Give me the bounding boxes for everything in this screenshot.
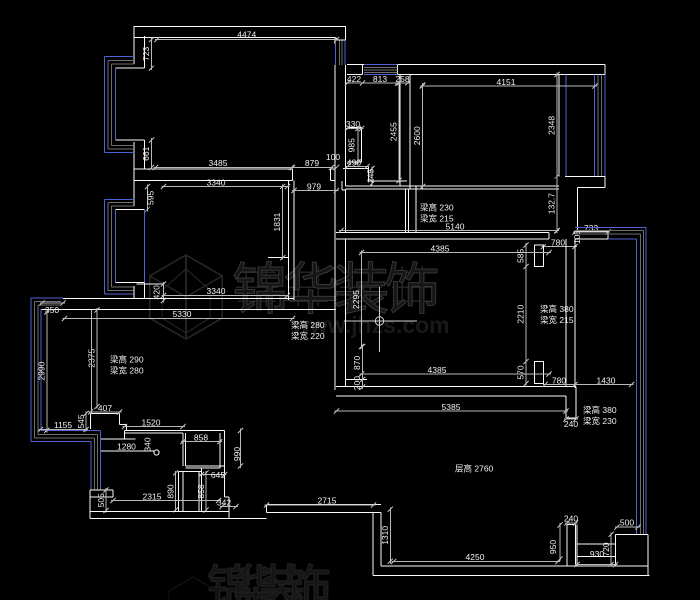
svg-text:层高 2760: 层高 2760	[455, 464, 494, 474]
svg-text:1310: 1310	[380, 526, 390, 545]
svg-text:407: 407	[98, 403, 112, 413]
svg-text:梁高 380: 梁高 380	[583, 405, 617, 415]
svg-text:5385: 5385	[442, 402, 461, 412]
svg-text:240: 240	[564, 419, 578, 429]
svg-text:723: 723	[141, 46, 151, 60]
svg-text:2348: 2348	[547, 116, 557, 135]
svg-text:2715: 2715	[318, 496, 337, 506]
svg-text:813: 813	[373, 74, 387, 84]
svg-text:645: 645	[211, 470, 225, 480]
svg-text:2455: 2455	[388, 122, 398, 141]
svg-text:132.7: 132.7	[547, 193, 557, 215]
svg-text:500: 500	[620, 518, 634, 528]
svg-text:5330: 5330	[173, 309, 192, 319]
svg-text:2295: 2295	[351, 290, 361, 309]
svg-text:梁宽 230: 梁宽 230	[583, 416, 617, 426]
svg-text:979: 979	[307, 182, 321, 192]
svg-text:4385: 4385	[428, 365, 447, 375]
svg-text:200: 200	[352, 376, 362, 390]
svg-text:1155: 1155	[54, 420, 73, 430]
svg-text:342: 342	[217, 498, 231, 508]
svg-text:858: 858	[194, 433, 208, 443]
svg-text:985: 985	[347, 138, 357, 152]
svg-text:梁高 280: 梁高 280	[291, 320, 325, 330]
svg-text:340: 340	[143, 437, 153, 451]
svg-text:505: 505	[96, 493, 106, 507]
svg-text:梁高 290: 梁高 290	[110, 355, 144, 365]
svg-text:4474: 4474	[237, 30, 256, 40]
svg-text:100: 100	[326, 152, 340, 162]
svg-text:595: 595	[146, 191, 156, 205]
svg-text:870: 870	[352, 356, 362, 370]
svg-text:1831: 1831	[272, 212, 282, 231]
svg-text:661: 661	[141, 146, 151, 160]
svg-text:720: 720	[601, 542, 611, 556]
svg-text:2990: 2990	[36, 361, 46, 380]
svg-text:梁宽 215: 梁宽 215	[540, 315, 574, 325]
svg-text:890: 890	[166, 484, 176, 498]
svg-text:780: 780	[551, 238, 565, 248]
svg-text:858: 858	[196, 484, 206, 498]
svg-text:1430: 1430	[597, 376, 616, 386]
svg-text:879: 879	[305, 158, 319, 168]
svg-text:4250: 4250	[466, 552, 485, 562]
svg-text:545: 545	[76, 414, 86, 428]
svg-text:梁宽 280: 梁宽 280	[110, 366, 144, 376]
svg-text:240: 240	[564, 514, 578, 524]
svg-text:585: 585	[516, 248, 526, 262]
svg-text:570: 570	[516, 365, 526, 379]
svg-text:3340: 3340	[207, 178, 226, 188]
svg-text:3485: 3485	[209, 158, 228, 168]
svg-text:490: 490	[347, 158, 361, 168]
svg-text:5140: 5140	[446, 222, 465, 232]
svg-text:4151: 4151	[497, 77, 516, 87]
svg-text:258: 258	[395, 74, 409, 84]
svg-text:梁宽 220: 梁宽 220	[291, 331, 325, 341]
svg-text:锦华装饰: 锦华装饰	[207, 561, 331, 600]
svg-text:420: 420	[152, 285, 162, 299]
svg-text:2600: 2600	[412, 126, 422, 145]
svg-text:780: 780	[552, 376, 566, 386]
svg-text:1520: 1520	[142, 418, 161, 428]
svg-text:梁高 230: 梁高 230	[420, 203, 454, 213]
svg-text:梁高 380: 梁高 380	[540, 304, 574, 314]
svg-text:733: 733	[584, 223, 598, 233]
svg-text:4385: 4385	[431, 244, 450, 254]
svg-text:105: 105	[572, 230, 582, 244]
svg-text:422: 422	[347, 74, 361, 84]
svg-text:1280: 1280	[117, 442, 136, 452]
svg-text:950: 950	[548, 540, 558, 554]
svg-text:245: 245	[366, 169, 376, 183]
svg-text:990: 990	[232, 447, 242, 461]
svg-text:2210: 2210	[516, 304, 526, 323]
svg-text:2315: 2315	[143, 492, 162, 502]
svg-text:3340: 3340	[207, 286, 226, 296]
